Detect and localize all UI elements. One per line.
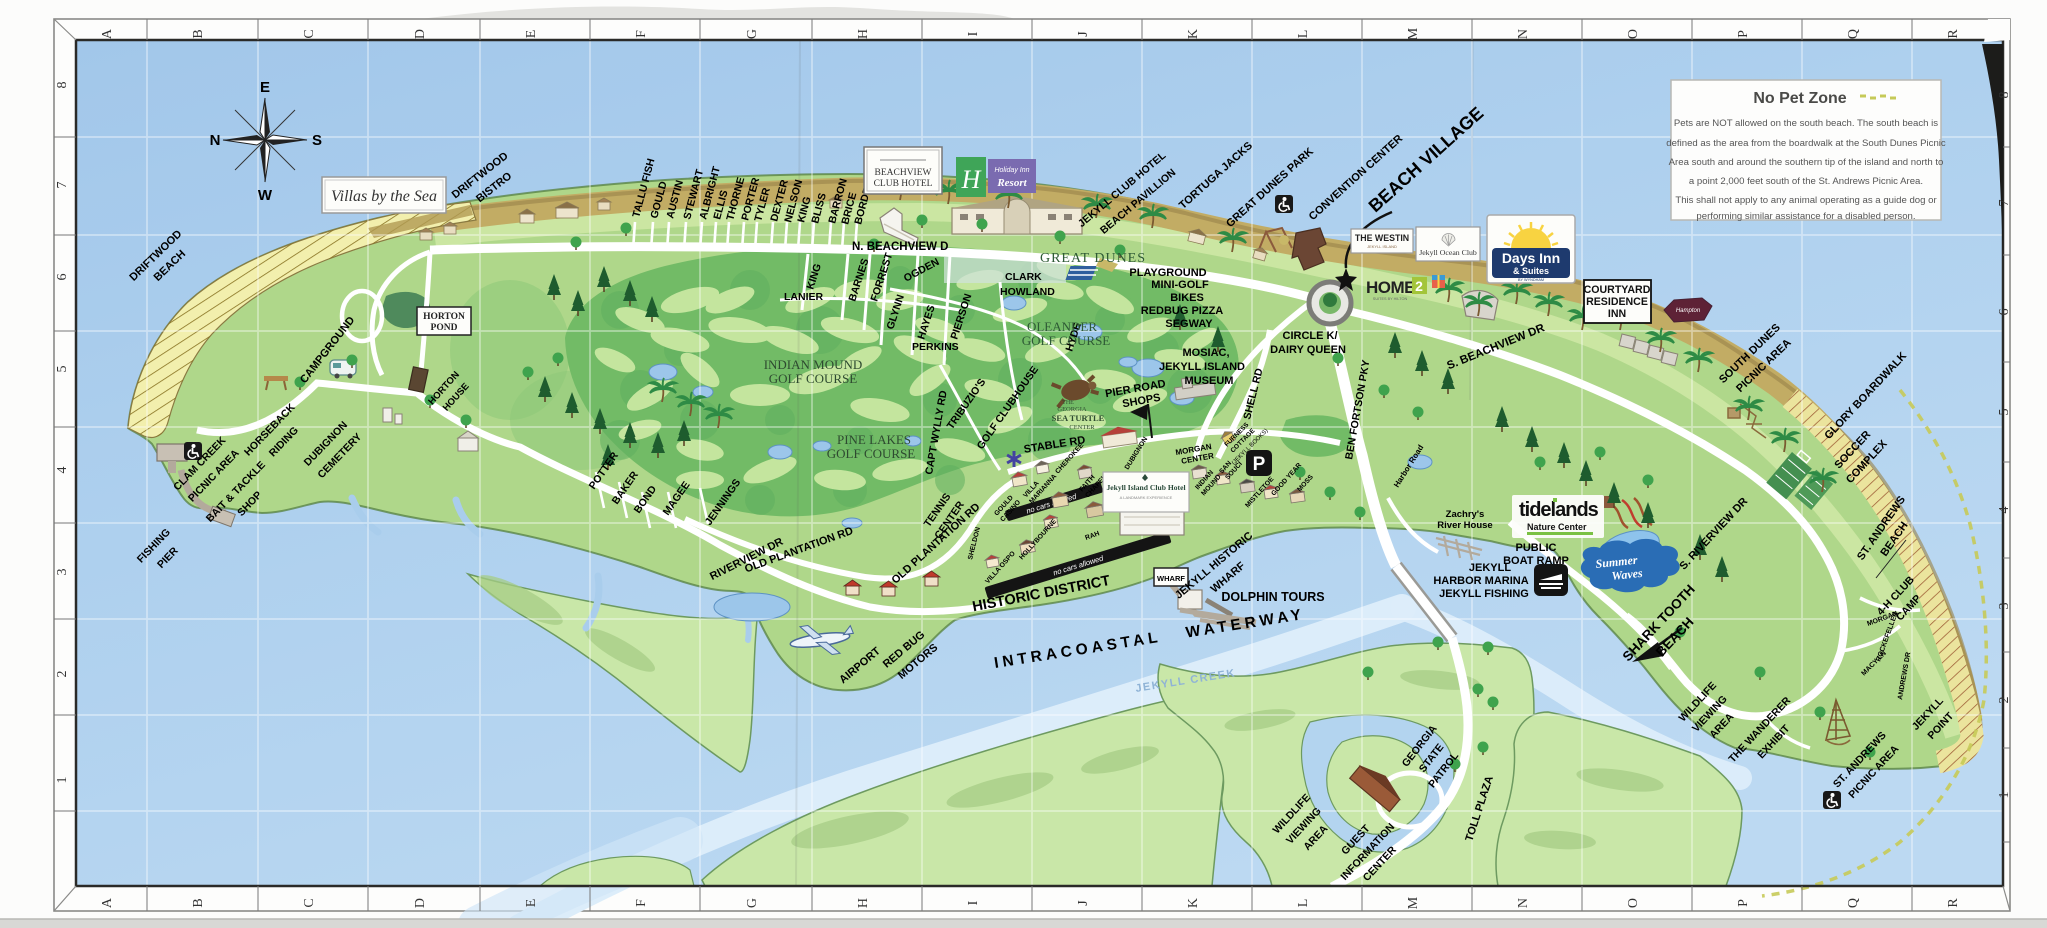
svg-text:DOLPHIN TOURS: DOLPHIN TOURS — [1221, 590, 1324, 604]
svg-text:CLARK: CLARK — [1005, 271, 1042, 283]
svg-text:JEKYLL: JEKYLL — [1469, 562, 1511, 574]
svg-text:HORTON: HORTON — [423, 312, 465, 322]
svg-text:W: W — [258, 187, 273, 204]
svg-text:Pets are NOT allowed on the so: Pets are NOT allowed on the south beach.… — [1674, 118, 1938, 129]
svg-text:INN: INN — [1608, 308, 1626, 320]
svg-text:INDIAN MOUND: INDIAN MOUND — [764, 357, 863, 372]
svg-text:CLUB HOTEL: CLUB HOTEL — [874, 179, 933, 189]
svg-text:& Suites: & Suites — [1513, 266, 1549, 276]
svg-text:B: B — [191, 29, 206, 38]
svg-text:Days Inn: Days Inn — [1502, 250, 1560, 266]
svg-text:P: P — [1736, 899, 1751, 907]
svg-text:No Pet Zone: No Pet Zone — [1753, 90, 1846, 107]
svg-text:HARBOR MARINA: HARBOR MARINA — [1433, 575, 1528, 587]
svg-text:tidelands: tidelands — [1519, 499, 1599, 521]
svg-text:Q: Q — [1846, 898, 1861, 908]
svg-text:POND: POND — [431, 323, 458, 333]
svg-text:HOME: HOME — [1366, 278, 1415, 297]
svg-text:4: 4 — [1997, 507, 2012, 514]
svg-text:SUITES BY HILTON: SUITES BY HILTON — [1373, 297, 1408, 301]
svg-text:GOLF COURSE: GOLF COURSE — [1022, 333, 1111, 348]
svg-text:G: G — [745, 898, 760, 908]
svg-text:3: 3 — [55, 569, 70, 576]
svg-text:performing similar assistance: performing similar assistance for a disa… — [1696, 211, 1915, 222]
svg-text:Jekyll Island Club Hotel: Jekyll Island Club Hotel — [1106, 483, 1185, 492]
svg-text:P: P — [1253, 454, 1266, 475]
svg-text:1: 1 — [1997, 792, 2012, 799]
svg-text:N: N — [1516, 898, 1531, 908]
svg-text:2: 2 — [55, 671, 70, 678]
svg-text:5: 5 — [55, 366, 70, 373]
svg-text:O: O — [1626, 29, 1641, 39]
svg-text:REDBUG PIZZA: REDBUG PIZZA — [1141, 305, 1224, 317]
svg-text:E: E — [524, 899, 539, 908]
svg-text:GREAT DUNES: GREAT DUNES — [1040, 251, 1146, 266]
svg-text:Holiday Inn: Holiday Inn — [994, 167, 1029, 174]
svg-text:G: G — [745, 29, 760, 39]
svg-text:O: O — [1626, 898, 1641, 908]
svg-text:DAIRY QUEEN: DAIRY QUEEN — [1270, 344, 1346, 356]
svg-text:Area south and around the sout: Area south and around the southern tip o… — [1669, 157, 1944, 168]
svg-text:A: A — [100, 28, 115, 39]
svg-text:LANIER: LANIER — [784, 291, 824, 303]
svg-text:J: J — [1076, 900, 1091, 906]
svg-text:PINE LAKES: PINE LAKES — [837, 432, 911, 447]
svg-text:GEORGIA: GEORGIA — [1057, 406, 1087, 413]
svg-text:6: 6 — [55, 274, 70, 281]
svg-text:D: D — [413, 29, 428, 39]
svg-text:HOWLAND: HOWLAND — [1000, 286, 1055, 298]
svg-text:MUSEUM: MUSEUM — [1185, 375, 1234, 387]
svg-text:PERKINS: PERKINS — [912, 341, 959, 353]
svg-text:C: C — [302, 898, 317, 907]
svg-text:defined as the area from the b: defined as the area from the boardwalk a… — [1666, 138, 1946, 149]
svg-text:Jekyll Ocean Club: Jekyll Ocean Club — [1419, 248, 1477, 257]
svg-text:4: 4 — [55, 467, 70, 474]
svg-text:C: C — [302, 29, 317, 38]
svg-text:K: K — [1186, 898, 1201, 908]
svg-text:BY WYNDHAM: BY WYNDHAM — [1518, 278, 1544, 282]
svg-text:E: E — [260, 79, 270, 96]
svg-text:A: A — [100, 897, 115, 908]
svg-text:RESIDENCE: RESIDENCE — [1586, 296, 1648, 308]
svg-text:R: R — [1946, 898, 1961, 908]
svg-text:WHARF: WHARF — [1157, 574, 1185, 583]
svg-text:N. BEACHVIEW D: N. BEACHVIEW D — [852, 241, 948, 253]
svg-text:A LANDMARK EXPERIENCE: A LANDMARK EXPERIENCE — [1120, 495, 1173, 500]
svg-text:K: K — [1186, 29, 1201, 39]
svg-text:5: 5 — [1997, 409, 2012, 416]
svg-text:D: D — [413, 898, 428, 908]
svg-text:Hampton: Hampton — [1676, 308, 1701, 314]
svg-text:COURTYARD: COURTYARD — [1584, 284, 1651, 296]
svg-text:H: H — [856, 898, 871, 908]
svg-text:This shall not apply to any an: This shall not apply to any animal opera… — [1675, 195, 1937, 206]
svg-text:GOLF COURSE: GOLF COURSE — [827, 446, 916, 461]
svg-text:H: H — [856, 29, 871, 39]
svg-text:L: L — [1296, 30, 1311, 39]
svg-text:PUBLIC: PUBLIC — [1516, 542, 1557, 554]
svg-text:I: I — [966, 31, 981, 36]
svg-text:Resort: Resort — [996, 177, 1027, 189]
svg-text:SEGWAY: SEGWAY — [1165, 318, 1213, 330]
svg-text:Zachry's: Zachry's — [1446, 509, 1485, 520]
svg-text:CENTER: CENTER — [1069, 424, 1095, 431]
svg-text:R: R — [1946, 29, 1961, 39]
svg-text:I: I — [966, 900, 981, 905]
svg-text:OLEANDER: OLEANDER — [1027, 319, 1097, 334]
svg-text:M: M — [1406, 896, 1421, 909]
svg-text:N: N — [210, 132, 221, 149]
svg-text:M: M — [1406, 27, 1421, 40]
svg-text:1: 1 — [55, 777, 70, 784]
svg-text:a point 2,000 feet south of th: a point 2,000 feet south of the St. Andr… — [1689, 176, 1923, 187]
svg-text:MINI-GOLF: MINI-GOLF — [1151, 279, 1209, 291]
svg-text:S: S — [312, 132, 322, 149]
svg-text:GOLF COURSE: GOLF COURSE — [769, 371, 858, 386]
svg-text:B: B — [191, 898, 206, 907]
svg-text:Nature Center: Nature Center — [1527, 522, 1587, 532]
svg-text:7: 7 — [55, 182, 70, 189]
svg-text:SEA TURTLE: SEA TURTLE — [1052, 413, 1105, 423]
svg-text:3: 3 — [1997, 603, 2012, 610]
svg-text:2: 2 — [1415, 278, 1423, 294]
svg-text:F: F — [634, 899, 649, 907]
svg-text:6: 6 — [1997, 309, 2012, 316]
svg-text:2: 2 — [1997, 697, 2012, 704]
svg-text:8: 8 — [55, 82, 70, 89]
svg-text:MOSIAC,: MOSIAC, — [1182, 347, 1229, 359]
svg-text:BOAT RAMP: BOAT RAMP — [1503, 555, 1569, 567]
svg-text:JEKYLL FISHING: JEKYLL FISHING — [1439, 588, 1529, 600]
svg-text:JEKYLL ISLAND: JEKYLL ISLAND — [1367, 244, 1397, 249]
svg-text:F: F — [634, 30, 649, 38]
svg-text:BEACHVIEW: BEACHVIEW — [875, 168, 932, 178]
svg-text:Villas by the Sea: Villas by the Sea — [331, 188, 437, 205]
svg-text:L: L — [1296, 899, 1311, 908]
svg-text:H: H — [961, 165, 982, 194]
svg-text:7: 7 — [1997, 200, 2012, 207]
svg-text:BIKES: BIKES — [1170, 292, 1204, 304]
svg-text:N: N — [1516, 29, 1531, 39]
svg-text:JEKYLL ISLAND: JEKYLL ISLAND — [1159, 361, 1245, 373]
svg-text:P: P — [1736, 30, 1751, 38]
svg-text:River House: River House — [1437, 520, 1492, 531]
svg-text:THE WESTIN: THE WESTIN — [1355, 233, 1409, 243]
svg-text:E: E — [524, 30, 539, 39]
svg-text:PLAYGROUND: PLAYGROUND — [1129, 267, 1206, 279]
svg-text:CIRCLE K/: CIRCLE K/ — [1283, 330, 1338, 342]
svg-text:Q: Q — [1846, 29, 1861, 39]
svg-text:J: J — [1076, 31, 1091, 37]
svg-text:8: 8 — [1997, 92, 2012, 99]
